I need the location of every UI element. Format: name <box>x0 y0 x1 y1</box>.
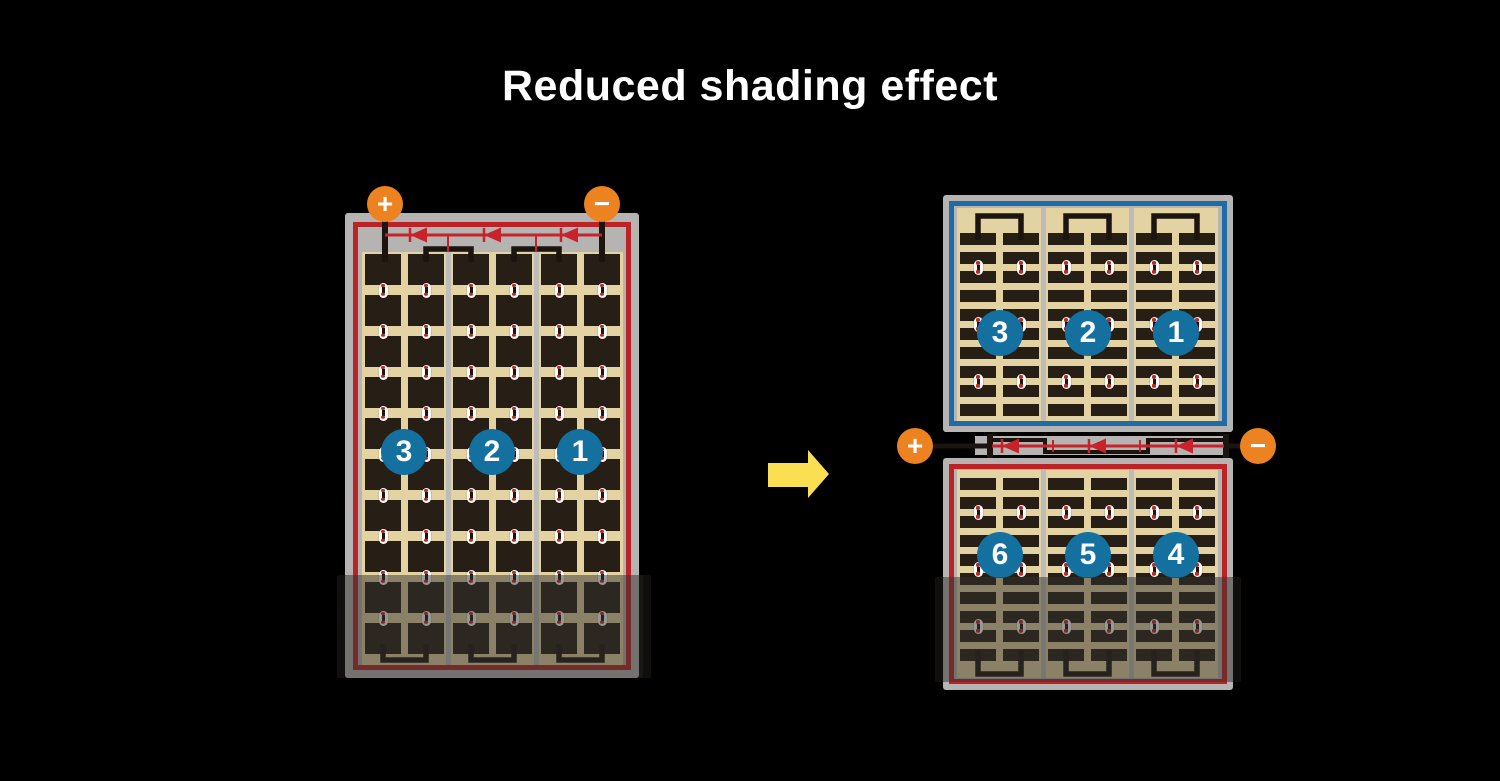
string-number-badge: 1 <box>557 429 603 475</box>
string-number-badge: 5 <box>1065 532 1111 578</box>
positive-terminal-right: + <box>897 428 933 464</box>
string-number-badge: 3 <box>977 310 1023 356</box>
string-number-badge: 6 <box>977 532 1023 578</box>
positive-terminal-left: + <box>367 186 403 222</box>
string-number-badge: 1 <box>1153 310 1199 356</box>
string-number-badge: 2 <box>1065 310 1111 356</box>
junction-box-band <box>975 436 1228 455</box>
string-number-badge: 2 <box>469 429 515 475</box>
string-number-badge: 3 <box>381 429 427 475</box>
wiring-layer <box>0 0 1500 781</box>
figure-canvas: Reduced shading effect <box>0 0 1500 781</box>
string-number-badge: 4 <box>1153 532 1199 578</box>
negative-terminal-left: − <box>584 186 620 222</box>
shading-overlay-left <box>337 575 651 678</box>
negative-terminal-right: − <box>1240 428 1276 464</box>
shading-overlay-right <box>935 577 1241 682</box>
figure-title: Reduced shading effect <box>0 62 1500 111</box>
transform-arrow-icon <box>768 450 829 498</box>
